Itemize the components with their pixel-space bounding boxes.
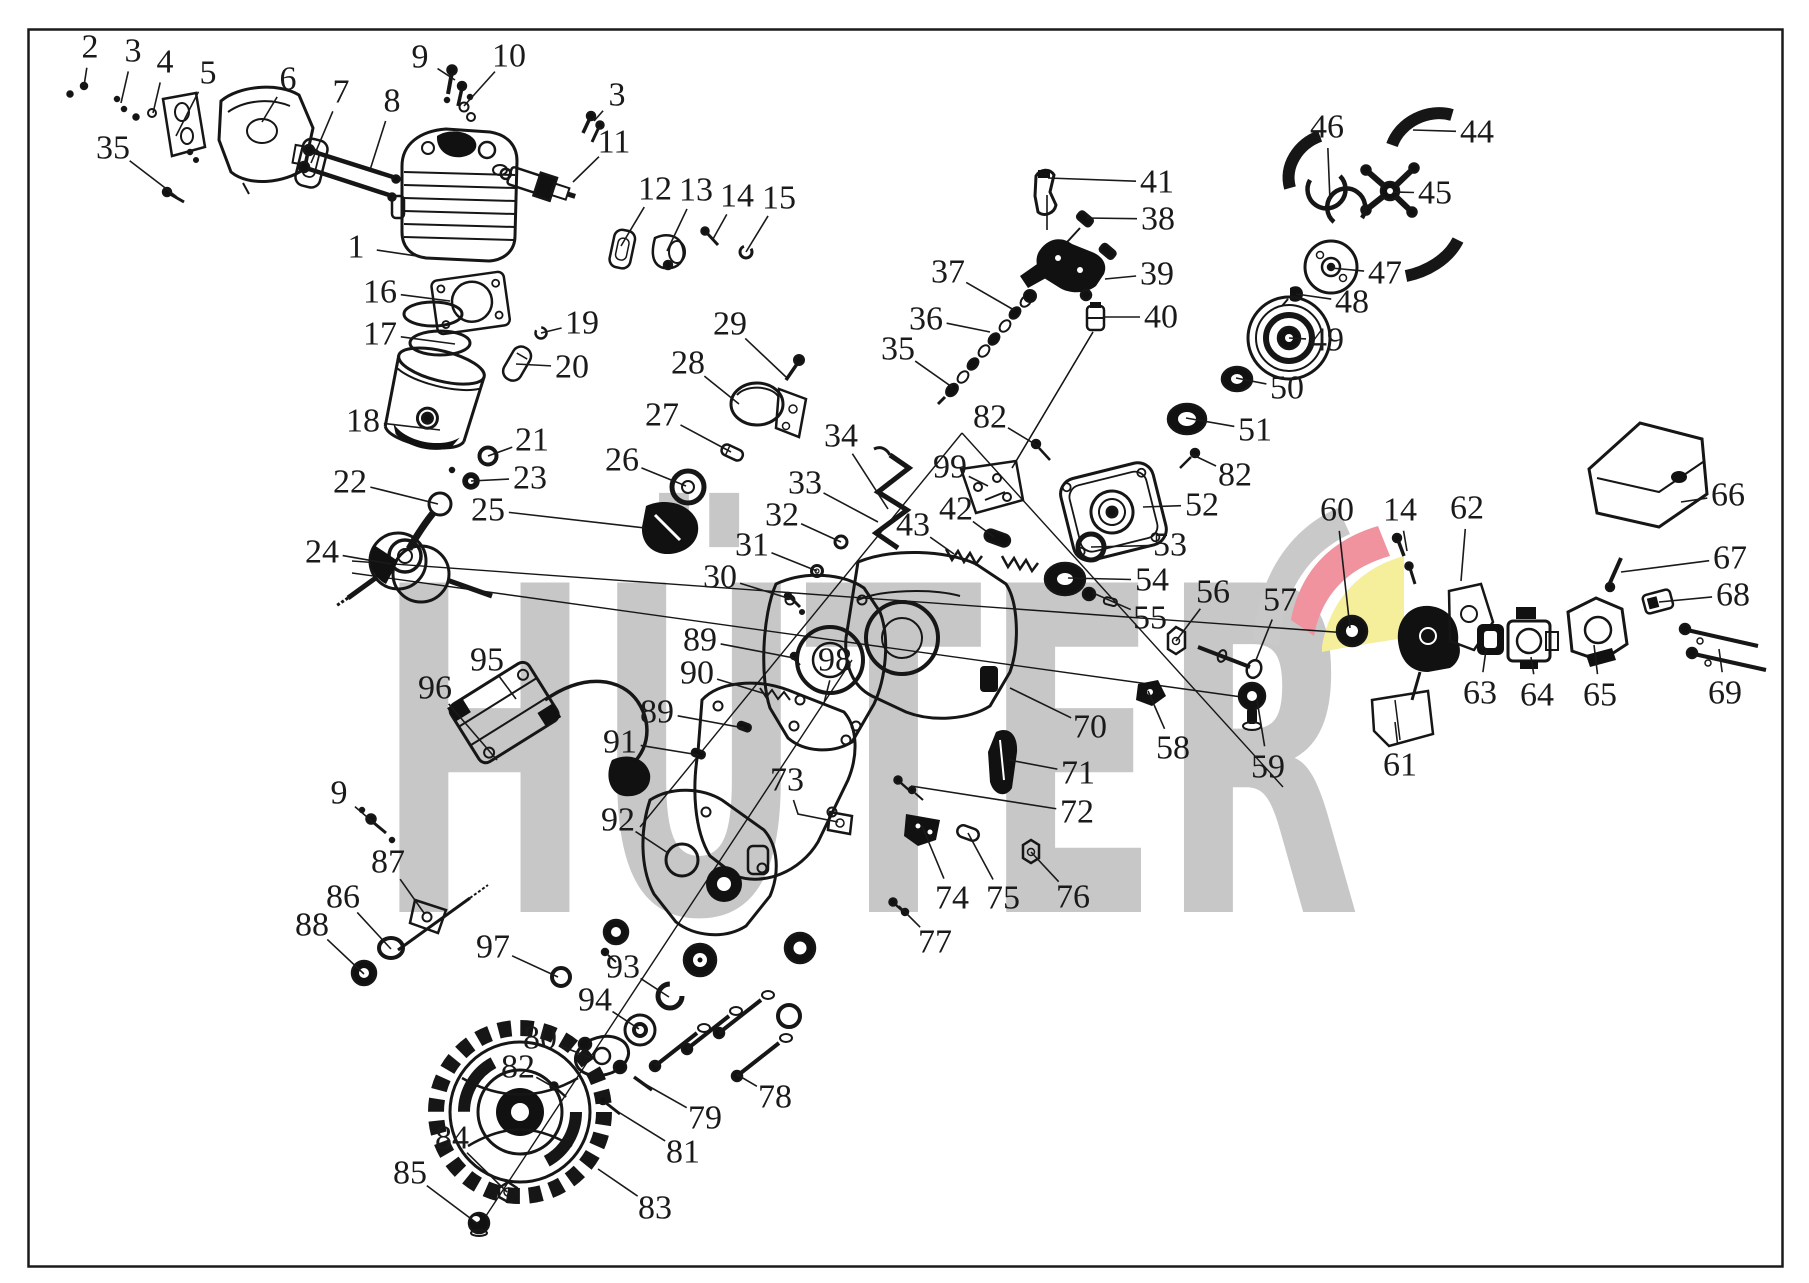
part-number-label: 59 xyxy=(1251,749,1285,786)
part-number-label: 29 xyxy=(713,306,747,343)
crankcase-oil-seal xyxy=(1337,616,1367,646)
part-number-label: 6 xyxy=(280,61,297,98)
part-number-label: 82 xyxy=(501,1049,535,1086)
part-number-label: 49 xyxy=(1310,322,1344,359)
leader-line xyxy=(915,361,952,387)
leader-line xyxy=(176,92,198,136)
part-number-label: 3 xyxy=(609,77,626,114)
part-number-label: 93 xyxy=(606,949,640,986)
parts-artwork xyxy=(68,66,1767,1237)
part-number-label: 96 xyxy=(418,670,452,707)
part-number-label: 73 xyxy=(770,762,804,799)
saw-chain xyxy=(938,290,1036,404)
part-number-label: 10 xyxy=(492,38,526,75)
cylinder-bolts xyxy=(299,145,400,201)
leader-line xyxy=(1048,178,1136,181)
leader-line xyxy=(746,216,768,252)
part-number-label: 90 xyxy=(680,655,714,692)
leader-line xyxy=(153,82,160,113)
leader-line xyxy=(641,468,686,486)
part-number-label: 9 xyxy=(412,39,429,76)
part-number-label: 44 xyxy=(1460,114,1494,151)
starter-clutch-assembly xyxy=(1168,113,1458,434)
part-number-label: 14 xyxy=(720,178,754,215)
brand-watermark: HÜTER xyxy=(376,488,1405,1019)
part-number-label: 33 xyxy=(788,465,822,502)
part-number-label: 51 xyxy=(1238,412,1272,449)
part-number-label: 66 xyxy=(1711,477,1745,514)
part-number-label: 68 xyxy=(1716,577,1750,614)
leader-line xyxy=(1395,722,1398,744)
part-number-label: 56 xyxy=(1196,574,1230,611)
part-number-label: 31 xyxy=(735,527,769,564)
part-number-label: 82 xyxy=(1218,457,1252,494)
part-number-label: 5 xyxy=(200,55,217,92)
part-number-label: 69 xyxy=(1708,675,1742,712)
part-number-label: 21 xyxy=(515,422,549,459)
dowel-pin xyxy=(720,443,745,462)
leader-line xyxy=(621,207,644,246)
part-number-label: 39 xyxy=(1140,256,1174,293)
part-number-label: 98 xyxy=(818,642,852,679)
chain-brake-assembly xyxy=(1012,195,1117,468)
part-number-label: 94 xyxy=(578,982,612,1019)
part-number-label: 3 xyxy=(125,33,142,70)
part-number-label: 48 xyxy=(1335,284,1369,321)
leader-line xyxy=(1086,218,1137,219)
part-number-label: 64 xyxy=(1520,677,1554,714)
part-number-label: 55 xyxy=(1133,600,1167,637)
leader-line xyxy=(1404,531,1407,551)
part-number-label: 24 xyxy=(305,534,339,571)
leader-line xyxy=(1461,529,1465,581)
part-number-label: 75 xyxy=(986,880,1020,917)
primer-bulb xyxy=(731,356,806,438)
part-number-label: 84 xyxy=(435,1120,469,1157)
part-number-label: 37 xyxy=(931,254,965,291)
part-number-label: 30 xyxy=(703,559,737,596)
part-number-label: 77 xyxy=(918,924,952,961)
carburetor-group xyxy=(1477,598,1627,669)
part-number-label: 7 xyxy=(333,74,350,111)
part-number-label: 85 xyxy=(393,1155,427,1192)
part-number-label: 53 xyxy=(1153,527,1187,564)
part-number-label: 92 xyxy=(601,802,635,839)
part-number-label: 19 xyxy=(565,305,599,342)
leader-line xyxy=(1659,597,1712,602)
part-number-label: 58 xyxy=(1156,730,1190,767)
leader-line xyxy=(620,1113,665,1141)
part-number-label: 25 xyxy=(471,492,505,529)
part-number-label: 91 xyxy=(603,724,637,761)
leader-line xyxy=(130,161,177,197)
part-number-label: 34 xyxy=(824,418,858,455)
leader-line xyxy=(643,1083,687,1108)
part-number-label: 41 xyxy=(1140,164,1174,201)
part-number-label: 89 xyxy=(683,622,717,659)
leader-line xyxy=(704,376,739,404)
leader-line xyxy=(1193,455,1216,466)
part-number-label: 18 xyxy=(346,403,380,440)
part-number-label: 79 xyxy=(688,1100,722,1137)
part-number-label: 76 xyxy=(1056,879,1090,916)
part-number-label: 70 xyxy=(1073,709,1107,746)
part-number-label: 95 xyxy=(470,642,504,679)
part-number-label: 23 xyxy=(513,460,547,497)
leader-line xyxy=(427,1186,478,1224)
small-fasteners-top-left xyxy=(68,83,198,202)
leader-line xyxy=(598,1169,638,1196)
part-number-label: 89 xyxy=(640,694,674,731)
leader-line xyxy=(1331,268,1364,271)
part-number-label: 60 xyxy=(1320,492,1354,529)
part-number-label: 2 xyxy=(82,29,99,66)
part-number-label: 78 xyxy=(758,1079,792,1116)
part-number-label: 28 xyxy=(671,345,705,382)
leader-line xyxy=(1413,130,1456,131)
part-number-label: 46 xyxy=(1310,109,1344,146)
part-number-label: 20 xyxy=(555,349,589,386)
part-number-label: 36 xyxy=(909,301,943,338)
part-number-label: 4 xyxy=(157,44,174,81)
leader-line xyxy=(969,476,988,486)
leader-line xyxy=(947,323,990,332)
leader-line xyxy=(745,338,786,377)
exploded-parts-diagram: HÜTER xyxy=(0,0,1809,1283)
leader-line xyxy=(573,157,599,182)
heat-shield xyxy=(163,93,205,156)
leader-line xyxy=(1328,148,1330,201)
part-number-label: 57 xyxy=(1263,582,1297,619)
parts-diagram-page: HÜTER xyxy=(0,0,1809,1283)
part-number-label: 97 xyxy=(476,929,510,966)
part-number-label: 74 xyxy=(935,880,969,917)
part-number-label: 81 xyxy=(666,1134,700,1171)
piston xyxy=(378,341,487,459)
part-number-label: 61 xyxy=(1383,747,1417,784)
part-number-label: 54 xyxy=(1135,562,1169,599)
part-number-label: 99 xyxy=(933,449,967,486)
part-number-label: 1 xyxy=(348,229,365,266)
part-number-label: 13 xyxy=(679,172,713,209)
part-number-label: 86 xyxy=(326,879,360,916)
leader-line xyxy=(1393,192,1414,193)
part-number-label: 88 xyxy=(295,907,329,944)
leader-line xyxy=(1289,338,1306,339)
leader-line xyxy=(966,282,1014,310)
part-number-label: 38 xyxy=(1141,201,1175,238)
leader-line xyxy=(713,214,727,239)
leader-line xyxy=(516,364,551,366)
part-number-label: 15 xyxy=(762,180,796,217)
part-number-label: 67 xyxy=(1713,540,1747,577)
leader-line xyxy=(464,72,495,106)
intake-gasket xyxy=(608,228,636,270)
part-number-label: 82 xyxy=(973,399,1007,436)
part-number-label: 17 xyxy=(363,316,397,353)
leader-line xyxy=(401,295,450,301)
watermark-text: HÜTER xyxy=(376,488,1361,1019)
leader-line xyxy=(1105,276,1136,279)
part-number-label: 83 xyxy=(638,1190,672,1227)
air-filter-housing xyxy=(1589,423,1707,527)
part-number-label: 9 xyxy=(331,775,348,812)
leader-line xyxy=(377,250,437,259)
leader-line xyxy=(121,71,128,103)
leader-line xyxy=(681,425,731,452)
part-number-label: 87 xyxy=(371,844,405,881)
part-number-label: 35 xyxy=(96,130,130,167)
part-number-label: 52 xyxy=(1185,487,1219,524)
muffler-cover xyxy=(219,87,313,194)
part-number-label: 47 xyxy=(1368,255,1402,292)
part-number-label: 72 xyxy=(1060,794,1094,831)
part-number-label: 16 xyxy=(363,274,397,311)
part-number-label: 42 xyxy=(939,491,973,528)
leader-line xyxy=(327,939,364,974)
part-number-label: 22 xyxy=(333,464,367,501)
part-number-label: 14 xyxy=(1383,492,1417,529)
part-number-label: 27 xyxy=(645,397,679,434)
part-number-label: 50 xyxy=(1270,370,1304,407)
cylinder xyxy=(392,129,517,261)
part-number-label: 12 xyxy=(638,171,672,208)
part-number-label: 40 xyxy=(1144,299,1178,336)
part-number-label: 32 xyxy=(765,497,799,534)
part-number-label: 45 xyxy=(1418,175,1452,212)
part-number-label: 65 xyxy=(1583,677,1617,714)
chain-brake-lever xyxy=(1035,170,1056,214)
part-number-label: 62 xyxy=(1450,490,1484,527)
part-number-label: 11 xyxy=(598,124,631,161)
part-number-label: 71 xyxy=(1061,755,1095,792)
part-number-label: 43 xyxy=(896,507,930,544)
part-number-label: 26 xyxy=(605,442,639,479)
leader-line xyxy=(370,121,386,170)
leader-line xyxy=(1621,561,1709,572)
part-number-label: 63 xyxy=(1463,675,1497,712)
part-number-label: 8 xyxy=(384,83,401,120)
